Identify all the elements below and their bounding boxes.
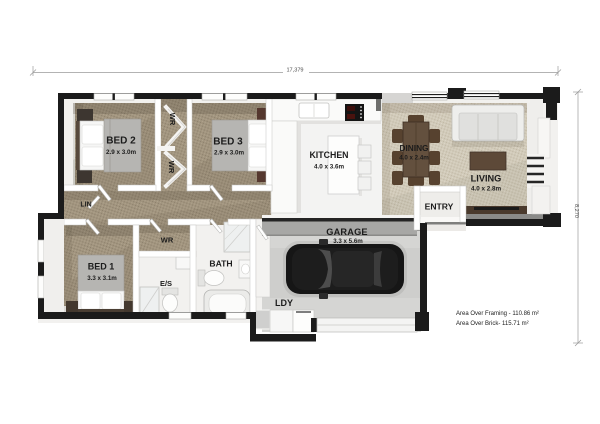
svg-text:BED 3: BED 3: [213, 137, 243, 148]
svg-text:ENTRY: ENTRY: [425, 202, 454, 212]
svg-text:LDY: LDY: [275, 298, 293, 308]
svg-text:4.0 x 3.6m: 4.0 x 3.6m: [314, 164, 345, 171]
svg-text:2.9 x 3.0m: 2.9 x 3.0m: [106, 149, 137, 156]
svg-text:4.0 x 2.4m: 4.0 x 2.4m: [399, 155, 429, 162]
svg-text:WR: WR: [161, 236, 174, 245]
svg-text:8,270: 8,270: [573, 204, 579, 218]
svg-text:2.9 x 3.0m: 2.9 x 3.0m: [214, 150, 245, 157]
svg-text:KITCHEN: KITCHEN: [309, 150, 348, 160]
svg-text:DINING: DINING: [399, 143, 428, 153]
svg-text:Area Over Framing - 110.86 m²: Area Over Framing - 110.86 m²: [456, 311, 539, 317]
svg-text:Area Over Brick- 115.71 m²: Area Over Brick- 115.71 m²: [456, 321, 529, 327]
svg-text:BED 1: BED 1: [88, 262, 115, 272]
svg-text:E/S: E/S: [160, 279, 172, 288]
svg-text:3.3 x 3.1m: 3.3 x 3.1m: [87, 275, 117, 282]
svg-text:LIN: LIN: [80, 202, 91, 209]
svg-text:17,379: 17,379: [286, 68, 303, 74]
svg-text:LIVING: LIVING: [471, 174, 502, 184]
svg-text:3.3 x 5.6m: 3.3 x 5.6m: [333, 238, 363, 245]
svg-text:BATH: BATH: [209, 259, 232, 269]
svg-text:WR: WR: [167, 161, 176, 174]
svg-text:4.0 x 2.8m: 4.0 x 2.8m: [471, 186, 502, 193]
svg-text:GARAGE: GARAGE: [326, 227, 368, 237]
svg-text:BED 2: BED 2: [106, 136, 136, 147]
svg-text:WR: WR: [168, 113, 177, 126]
